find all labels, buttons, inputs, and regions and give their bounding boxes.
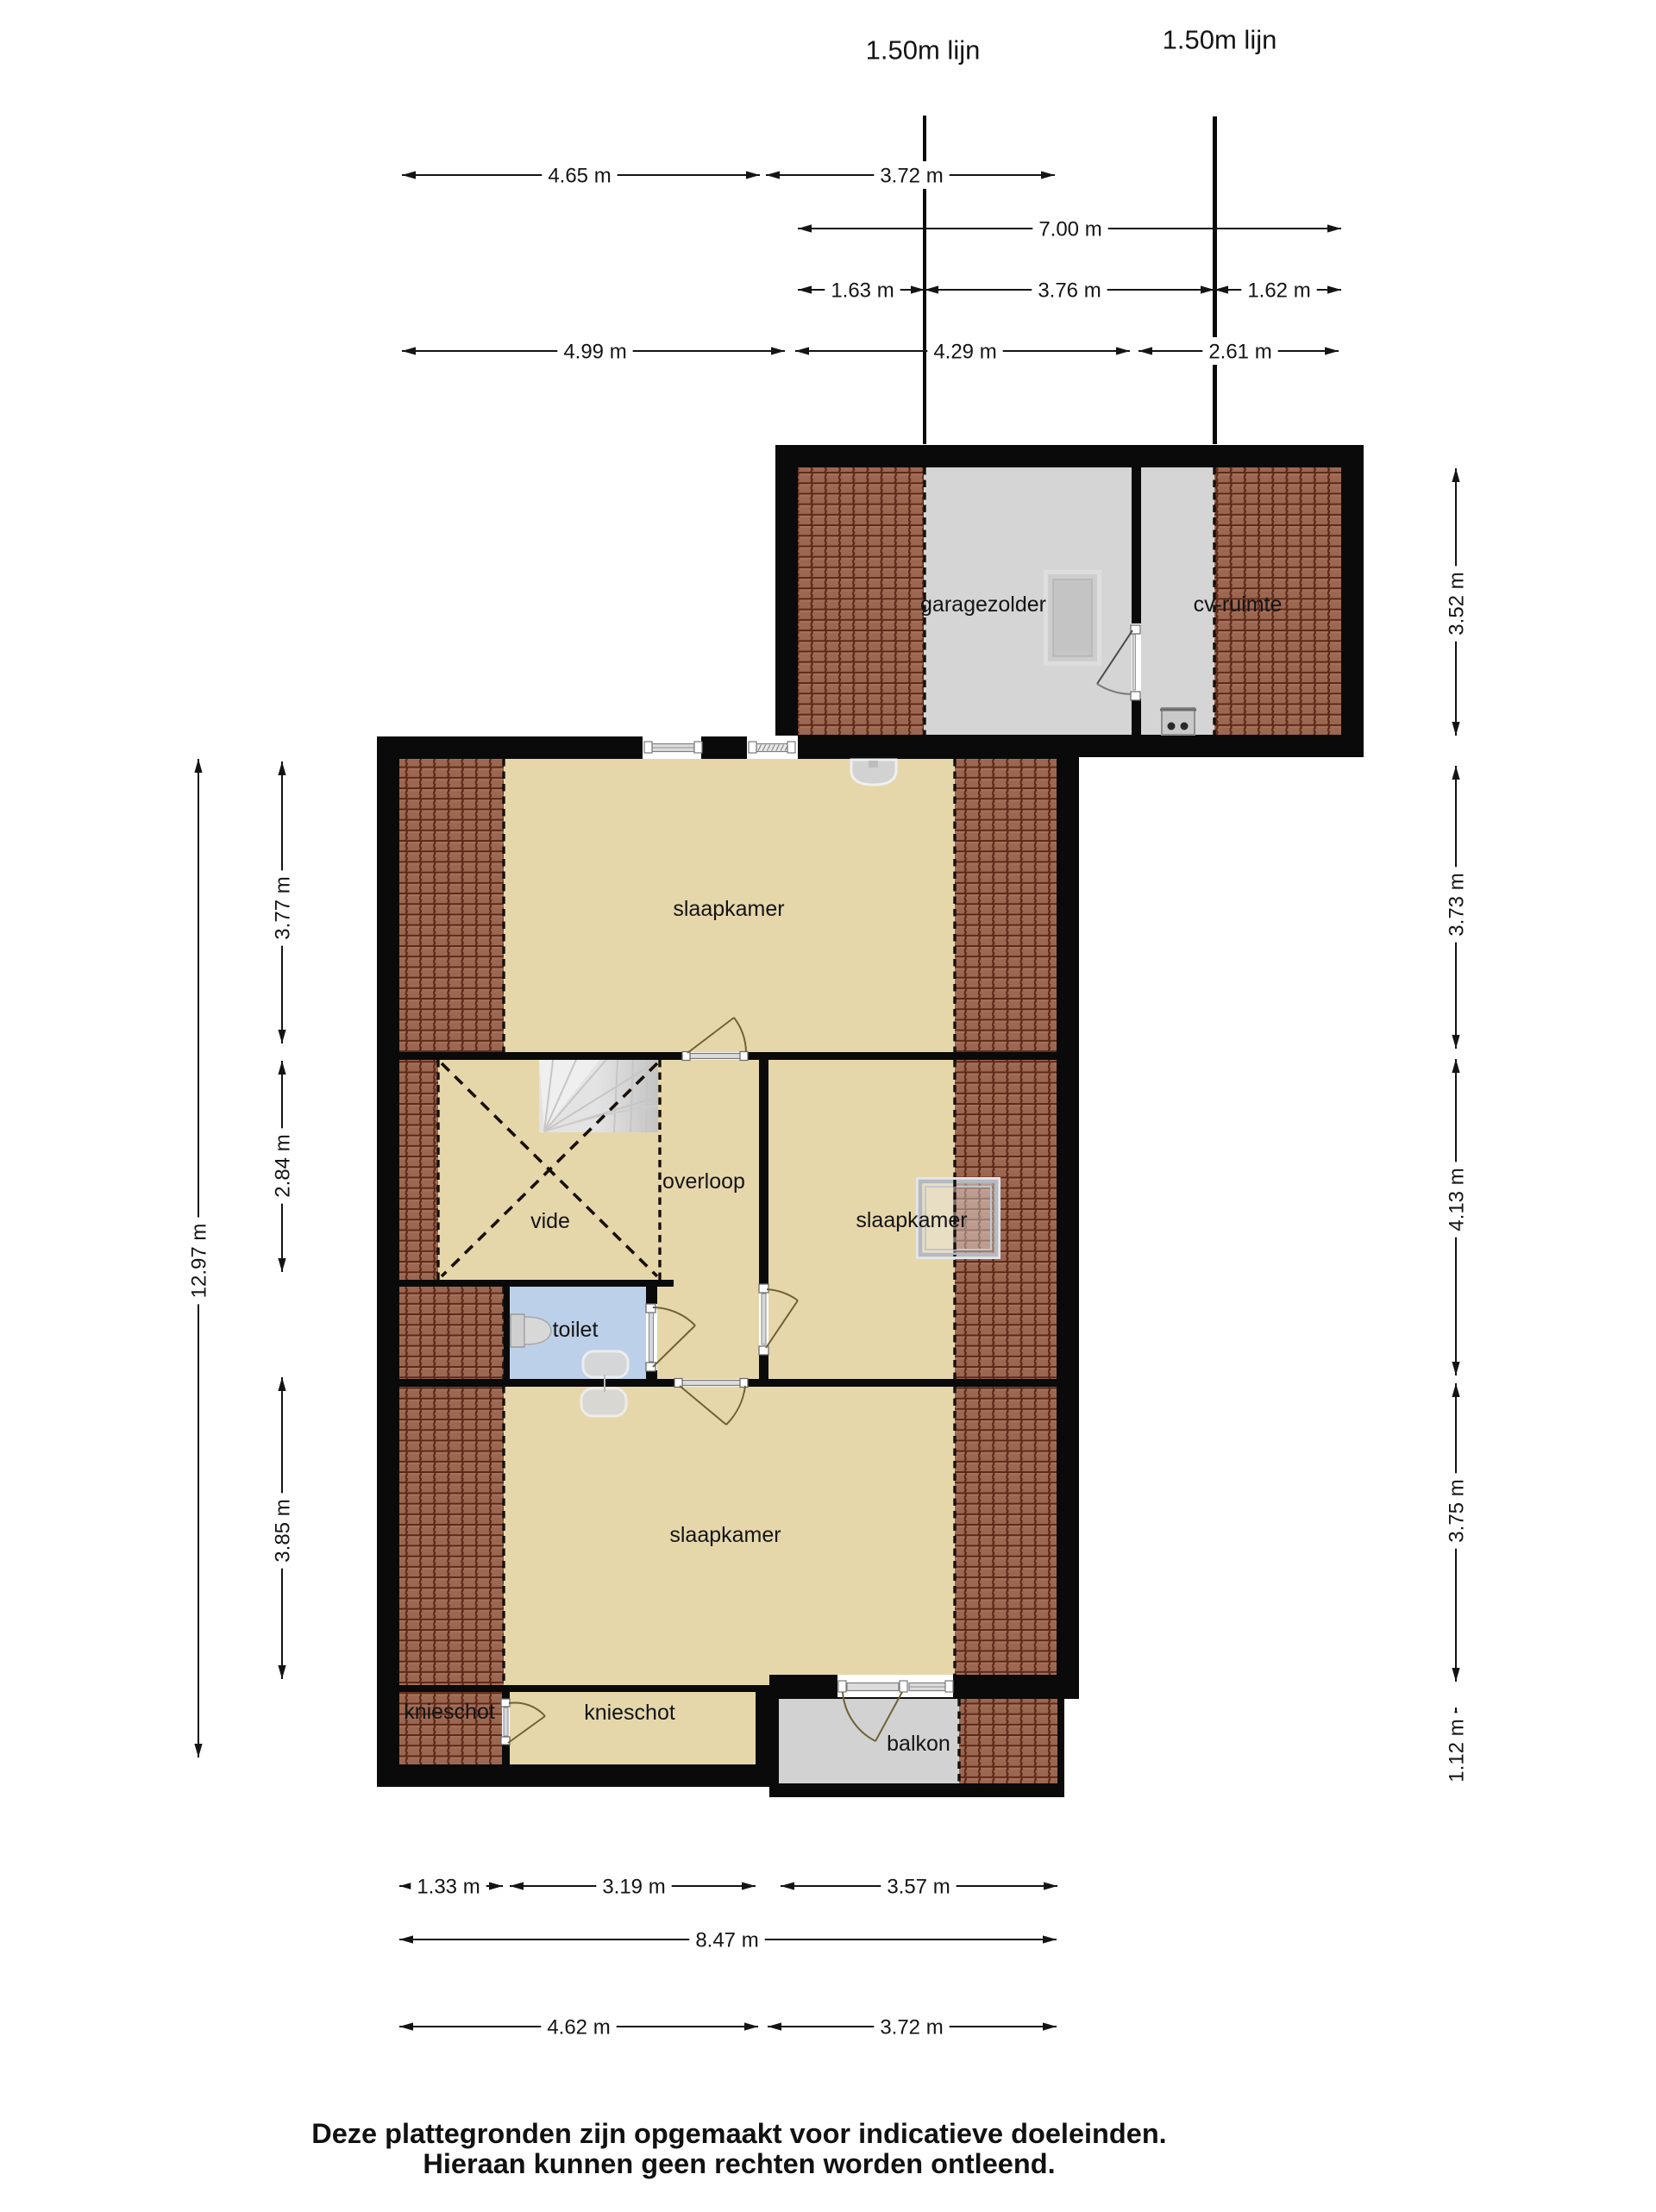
svg-text:1.33 m: 1.33 m — [417, 1876, 480, 1899]
svg-text:3.72 m: 3.72 m — [880, 2016, 943, 2040]
svg-text:3.76 m: 3.76 m — [1038, 279, 1101, 303]
svg-text:1.50m lijn: 1.50m lijn — [866, 35, 981, 66]
svg-text:3.75 m: 3.75 m — [1446, 1479, 1469, 1542]
svg-text:1.62 m: 1.62 m — [1247, 279, 1310, 303]
svg-text:3.52 m: 3.52 m — [1446, 572, 1469, 635]
svg-text:1.63 m: 1.63 m — [831, 279, 894, 303]
svg-text:4.99 m: 4.99 m — [563, 341, 626, 364]
svg-text:3.57 m: 3.57 m — [887, 1876, 950, 1899]
svg-text:3.73 m: 3.73 m — [1446, 873, 1469, 936]
svg-text:vide: vide — [530, 1209, 570, 1233]
svg-text:4.29 m: 4.29 m — [933, 341, 996, 364]
svg-text:4.62 m: 4.62 m — [547, 2016, 610, 2040]
svg-text:knieschot: knieschot — [584, 1701, 675, 1725]
svg-text:1.12 m: 1.12 m — [1446, 1719, 1469, 1782]
svg-text:7.00 m: 7.00 m — [1038, 218, 1101, 241]
svg-text:1.50m lijn: 1.50m lijn — [1163, 25, 1277, 55]
svg-text:3.85 m: 3.85 m — [272, 1499, 295, 1562]
svg-text:2.61 m: 2.61 m — [1208, 341, 1271, 364]
svg-text:garagezolder: garagezolder — [920, 592, 1046, 617]
svg-text:cv-ruimte: cv-ruimte — [1194, 592, 1283, 617]
svg-text:4.65 m: 4.65 m — [548, 165, 611, 188]
svg-text:3.72 m: 3.72 m — [880, 165, 943, 188]
svg-text:8.47 m: 8.47 m — [695, 1929, 758, 1952]
svg-text:3.19 m: 3.19 m — [602, 1876, 665, 1899]
svg-text:slaapkamer: slaapkamer — [856, 1208, 967, 1232]
svg-text:4.13 m: 4.13 m — [1446, 1168, 1469, 1231]
svg-text:overloop: overloop — [662, 1169, 745, 1194]
svg-text:balkon: balkon — [887, 1732, 950, 1756]
svg-text:12.97 m: 12.97 m — [188, 1224, 211, 1299]
svg-text:slaapkamer: slaapkamer — [669, 1523, 781, 1547]
svg-text:2.84 m: 2.84 m — [272, 1134, 295, 1197]
svg-text:3.77 m: 3.77 m — [272, 876, 295, 939]
svg-text:slaapkamer: slaapkamer — [673, 897, 784, 921]
svg-text:Hieraan kunnen geen rechten wo: Hieraan kunnen geen rechten worden ontle… — [423, 2148, 1055, 2179]
svg-text:Deze plattegronden zijn opgema: Deze plattegronden zijn opgemaakt voor i… — [311, 2118, 1166, 2149]
svg-text:toilet: toilet — [553, 1318, 599, 1342]
svg-text:knieschot: knieschot — [404, 1700, 495, 1724]
